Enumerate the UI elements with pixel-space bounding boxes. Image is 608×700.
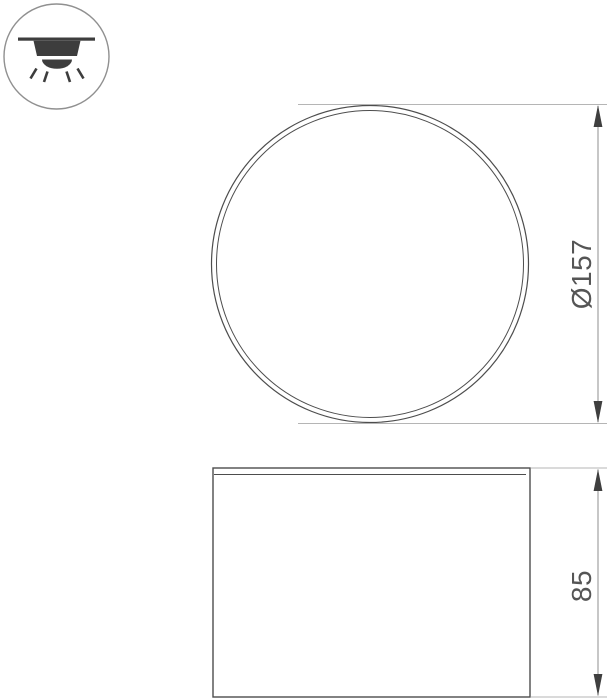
height-dimension: 85 xyxy=(531,468,607,697)
top-view-inner-circle xyxy=(217,111,524,418)
arrow-up-icon xyxy=(594,469,603,491)
icon-fixture-body xyxy=(34,41,81,56)
top-view-outer-circle xyxy=(212,106,529,423)
icon-ceiling-line xyxy=(18,38,95,41)
height-dimension-label: 85 xyxy=(566,570,597,602)
front-view-body xyxy=(213,468,530,697)
icon-circle-outline xyxy=(4,4,109,109)
front-view xyxy=(213,468,530,697)
diameter-dimension-label: Ø157 xyxy=(566,239,597,310)
diameter-dimension: Ø157 xyxy=(298,105,607,424)
arrow-down-icon xyxy=(594,401,603,423)
technical-drawing-page: Ø157 85 xyxy=(0,0,608,700)
mounting-type-icon xyxy=(4,4,109,109)
technical-drawing: Ø157 85 xyxy=(0,0,608,700)
arrow-up-icon xyxy=(594,105,603,127)
arrow-down-icon xyxy=(594,674,603,696)
top-view xyxy=(212,106,529,423)
